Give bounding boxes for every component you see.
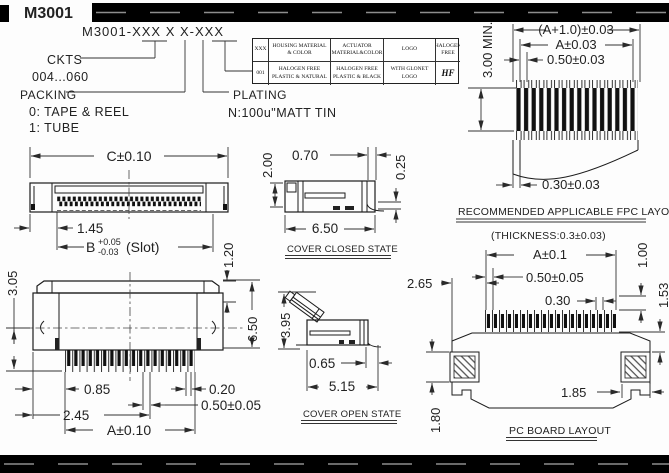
open-dim-5-15: 5.15 bbox=[329, 379, 355, 394]
front-view: C±0.10 1.45 B +0.05 -0.03 (Slot) bbox=[14, 147, 228, 257]
fpc-layout-view: (A+1.0)±0.03 A±0.03 0.50±0.03 3.00 MIN. … bbox=[456, 22, 669, 242]
page-title: M3001 bbox=[24, 5, 73, 22]
pcb-dim-2-65: 2.65 bbox=[407, 276, 432, 291]
pcb-dim-a: A±0.1 bbox=[533, 247, 567, 262]
top-dim-2-45: 2.45 bbox=[63, 408, 89, 423]
top-dim-0-50: 0.50±0.05 bbox=[201, 398, 261, 413]
fpc-dim-overall: (A+1.0)±0.03 bbox=[538, 22, 613, 37]
spec-table: XXX HOUSING MATERIAL & COLOR ACTUATOR MA… bbox=[252, 38, 459, 84]
packing-option-1: 0: TAPE & REEL bbox=[29, 105, 129, 119]
top-view: 3.05 1.20 6.50 0.85 0.20 0.50±0.05 2.45 bbox=[5, 243, 261, 438]
spec-cell: HALOGEN FREE PLASTIC & BLACK bbox=[331, 62, 384, 85]
front-dim-b-plus: +0.05 bbox=[98, 237, 121, 247]
fpc-thickness-note: (THICKNESS:0.3±0.03) bbox=[491, 230, 606, 242]
front-dim-b: B bbox=[86, 239, 95, 255]
pcb-dim-1-53: 1.53 bbox=[656, 283, 669, 308]
spec-cell: 001 bbox=[253, 62, 269, 85]
pcb-dim-1-80: 1.80 bbox=[428, 408, 443, 433]
front-dim-1-45: 1.45 bbox=[77, 221, 103, 236]
side-view-cover-closed: 2.00 0.70 0.25 6.50 COVER CLOSED STATE bbox=[260, 147, 408, 259]
page-edge-mark bbox=[0, 5, 9, 22]
spec-header-cell: HOUSING MATERIAL & COLOR bbox=[269, 39, 331, 62]
front-dim-c: C±0.10 bbox=[106, 148, 151, 164]
fpc-dim-a: A±0.03 bbox=[555, 37, 596, 52]
fpc-dim-pitch: 0.50±0.03 bbox=[547, 52, 605, 67]
packing-option-2: 1: TUBE bbox=[29, 121, 80, 135]
fpc-dim-height: 3.00 MIN. bbox=[480, 22, 495, 78]
halogen-free-mark: HF bbox=[436, 62, 460, 85]
pcb-view-title: PC BOARD LAYOUT bbox=[509, 425, 611, 437]
spec-cell: WITH GLONET LOGO bbox=[384, 62, 436, 85]
ckts-range: 004...060 bbox=[32, 70, 89, 84]
pcb-dim-1-00: 1.00 bbox=[635, 243, 650, 268]
open-dim-3-95: 3.95 bbox=[278, 313, 293, 338]
closed-dim-0-25: 0.25 bbox=[393, 155, 408, 180]
plating-label: PLATING bbox=[233, 88, 287, 102]
spec-header-cell: HALOGEN FREE bbox=[436, 39, 460, 62]
top-dim-3-05: 3.05 bbox=[5, 271, 20, 296]
packing-label: PACKING bbox=[20, 88, 77, 102]
spec-header-cell: LOGO bbox=[384, 39, 436, 62]
plating-value: N:100u"MATT TIN bbox=[228, 106, 337, 120]
datasheet-page: XXX HOUSING MATERIAL & COLOR ACTUATOR MA… bbox=[0, 0, 669, 473]
front-dim-b-suffix: (Slot) bbox=[126, 239, 159, 255]
closed-dim-0-70: 0.70 bbox=[292, 148, 318, 163]
pcb-dim-0-30: 0.30 bbox=[545, 293, 570, 308]
pcb-dim-0-50: 0.50±0.05 bbox=[526, 270, 584, 285]
pcb-layout-view: A±0.1 0.50±0.05 0.30 2.65 1.00 1.53 bbox=[407, 243, 669, 441]
open-dim-0-65: 0.65 bbox=[309, 356, 335, 371]
top-dim-6-50: 6.50 bbox=[245, 317, 260, 342]
top-dim-0-20: 0.20 bbox=[209, 382, 235, 397]
top-dim-1-20: 1.20 bbox=[221, 243, 236, 268]
open-view-title: COVER OPEN STATE bbox=[303, 409, 401, 420]
spec-header-cell: ACTUATOR MATERIAL&COLOR bbox=[331, 39, 384, 62]
spec-cell: HALOGEN FREE PLASTIC & NATURAL bbox=[269, 62, 331, 85]
front-dim-b-minus: -0.03 bbox=[98, 247, 119, 257]
fpc-view-title: RECOMMENDED APPLICABLE FPC LAYOUT bbox=[458, 206, 669, 218]
closed-dim-6-50: 6.50 bbox=[312, 221, 338, 236]
ckts-label: CKTS bbox=[47, 53, 82, 67]
part-number-code: M3001-XXX X X-XXX bbox=[82, 24, 224, 39]
top-dim-0-85: 0.85 bbox=[84, 382, 110, 397]
closed-view-title: COVER CLOSED STATE bbox=[287, 244, 398, 255]
spec-header-cell: XXX bbox=[253, 39, 269, 62]
side-view-cover-open: 3.95 0.65 5.15 COVER OPEN STATE bbox=[278, 289, 401, 424]
closed-dim-2-00: 2.00 bbox=[260, 153, 275, 178]
fpc-dim-margin: 0.30±0.03 bbox=[542, 177, 600, 192]
pcb-dim-1-85: 1.85 bbox=[561, 385, 586, 400]
top-dim-a: A±0.10 bbox=[107, 422, 151, 438]
